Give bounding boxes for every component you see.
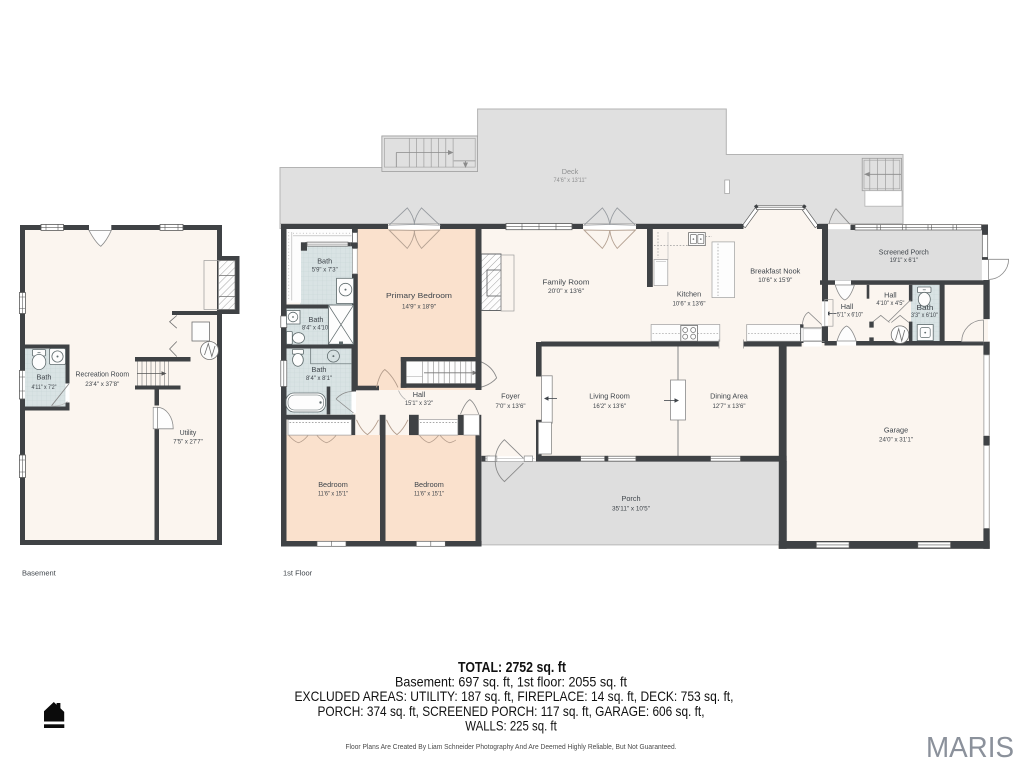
svg-text:Dining Area: Dining Area [710,392,749,401]
svg-text:Utility: Utility [180,428,197,437]
svg-text:Breakfast Nook: Breakfast Nook [750,267,800,276]
svg-text:4'11" x 7'2": 4'11" x 7'2" [32,384,57,391]
svg-text:8'4" x 4'10": 8'4" x 4'10" [302,325,330,332]
svg-text:Foyer: Foyer [501,392,520,401]
svg-text:Bath: Bath [36,373,51,382]
svg-text:Bath: Bath [311,365,326,374]
svg-text:24'0" x 31'1": 24'0" x 31'1" [879,437,913,444]
svg-text:Bedroom: Bedroom [414,480,444,489]
svg-text:Basement: Basement [22,569,57,578]
svg-text:Bath: Bath [308,315,323,324]
svg-text:11'6" x 15'1": 11'6" x 15'1" [414,491,444,498]
svg-text:7'0" x 13'6": 7'0" x 13'6" [496,403,526,410]
svg-text:4'10" x 4'5": 4'10" x 4'5" [876,300,904,307]
svg-text:19'1" x 6'1": 19'1" x 6'1" [890,257,918,264]
svg-text:Living Room: Living Room [589,392,630,401]
svg-text:8'4" x 8'1": 8'4" x 8'1" [306,375,332,382]
svg-text:5'9" x 7'3": 5'9" x 7'3" [312,267,338,274]
svg-text:14'9" x 18'9": 14'9" x 18'9" [402,304,436,311]
svg-text:WALLS: 225 sq. ft: WALLS: 225 sq. ft [465,718,557,734]
svg-text:Hall: Hall [413,390,426,399]
svg-text:11'6" x 15'1": 11'6" x 15'1" [318,491,348,498]
svg-text:16'2" x 13'6": 16'2" x 13'6" [593,403,626,410]
svg-text:Floor Plans Are Created By Lia: Floor Plans Are Created By Liam Schneide… [346,744,677,751]
svg-text:10'6" x 13'6": 10'6" x 13'6" [673,301,706,308]
svg-text:Kitchen: Kitchen [677,290,701,299]
svg-text:Primary Bedroom: Primary Bedroom [386,291,452,300]
svg-text:10'6" x 15'9": 10'6" x 15'9" [758,277,792,284]
svg-text:Hall: Hall [841,302,854,311]
svg-text:1st Floor: 1st Floor [283,569,313,578]
svg-text:35'11" x 10'5": 35'11" x 10'5" [612,506,650,513]
svg-text:20'0" x 13'6": 20'0" x 13'6" [548,288,584,295]
svg-text:15'1" x 3'2": 15'1" x 3'2" [405,400,433,407]
svg-text:Screened Porch: Screened Porch [879,248,929,257]
svg-text:5'1" x 6'10": 5'1" x 6'10" [837,312,863,319]
svg-text:12'7" x 13'6": 12'7" x 13'6" [713,403,746,410]
svg-text:Bath: Bath [317,257,332,266]
svg-text:74'6" x 13'11": 74'6" x 13'11" [554,177,587,184]
svg-text:23'4" x 37'8": 23'4" x 37'8" [85,381,119,388]
svg-text:Family Room: Family Room [543,278,590,287]
svg-text:Recreation Room: Recreation Room [76,369,130,378]
svg-text:MARIS: MARIS [926,732,1014,764]
svg-text:3'3" x 6'10": 3'3" x 6'10" [911,312,938,319]
svg-text:Hall: Hall [884,291,897,300]
svg-text:Garage: Garage [884,426,908,435]
svg-text:7'5" x 27'7": 7'5" x 27'7" [173,438,203,445]
svg-text:EXCLUDED AREAS: UTILITY: 187 s: EXCLUDED AREAS: UTILITY: 187 sq. ft, FIR… [295,688,734,704]
svg-text:Porch: Porch [621,494,640,503]
svg-text:Deck: Deck [562,167,579,176]
svg-text:Bedroom: Bedroom [318,480,348,489]
